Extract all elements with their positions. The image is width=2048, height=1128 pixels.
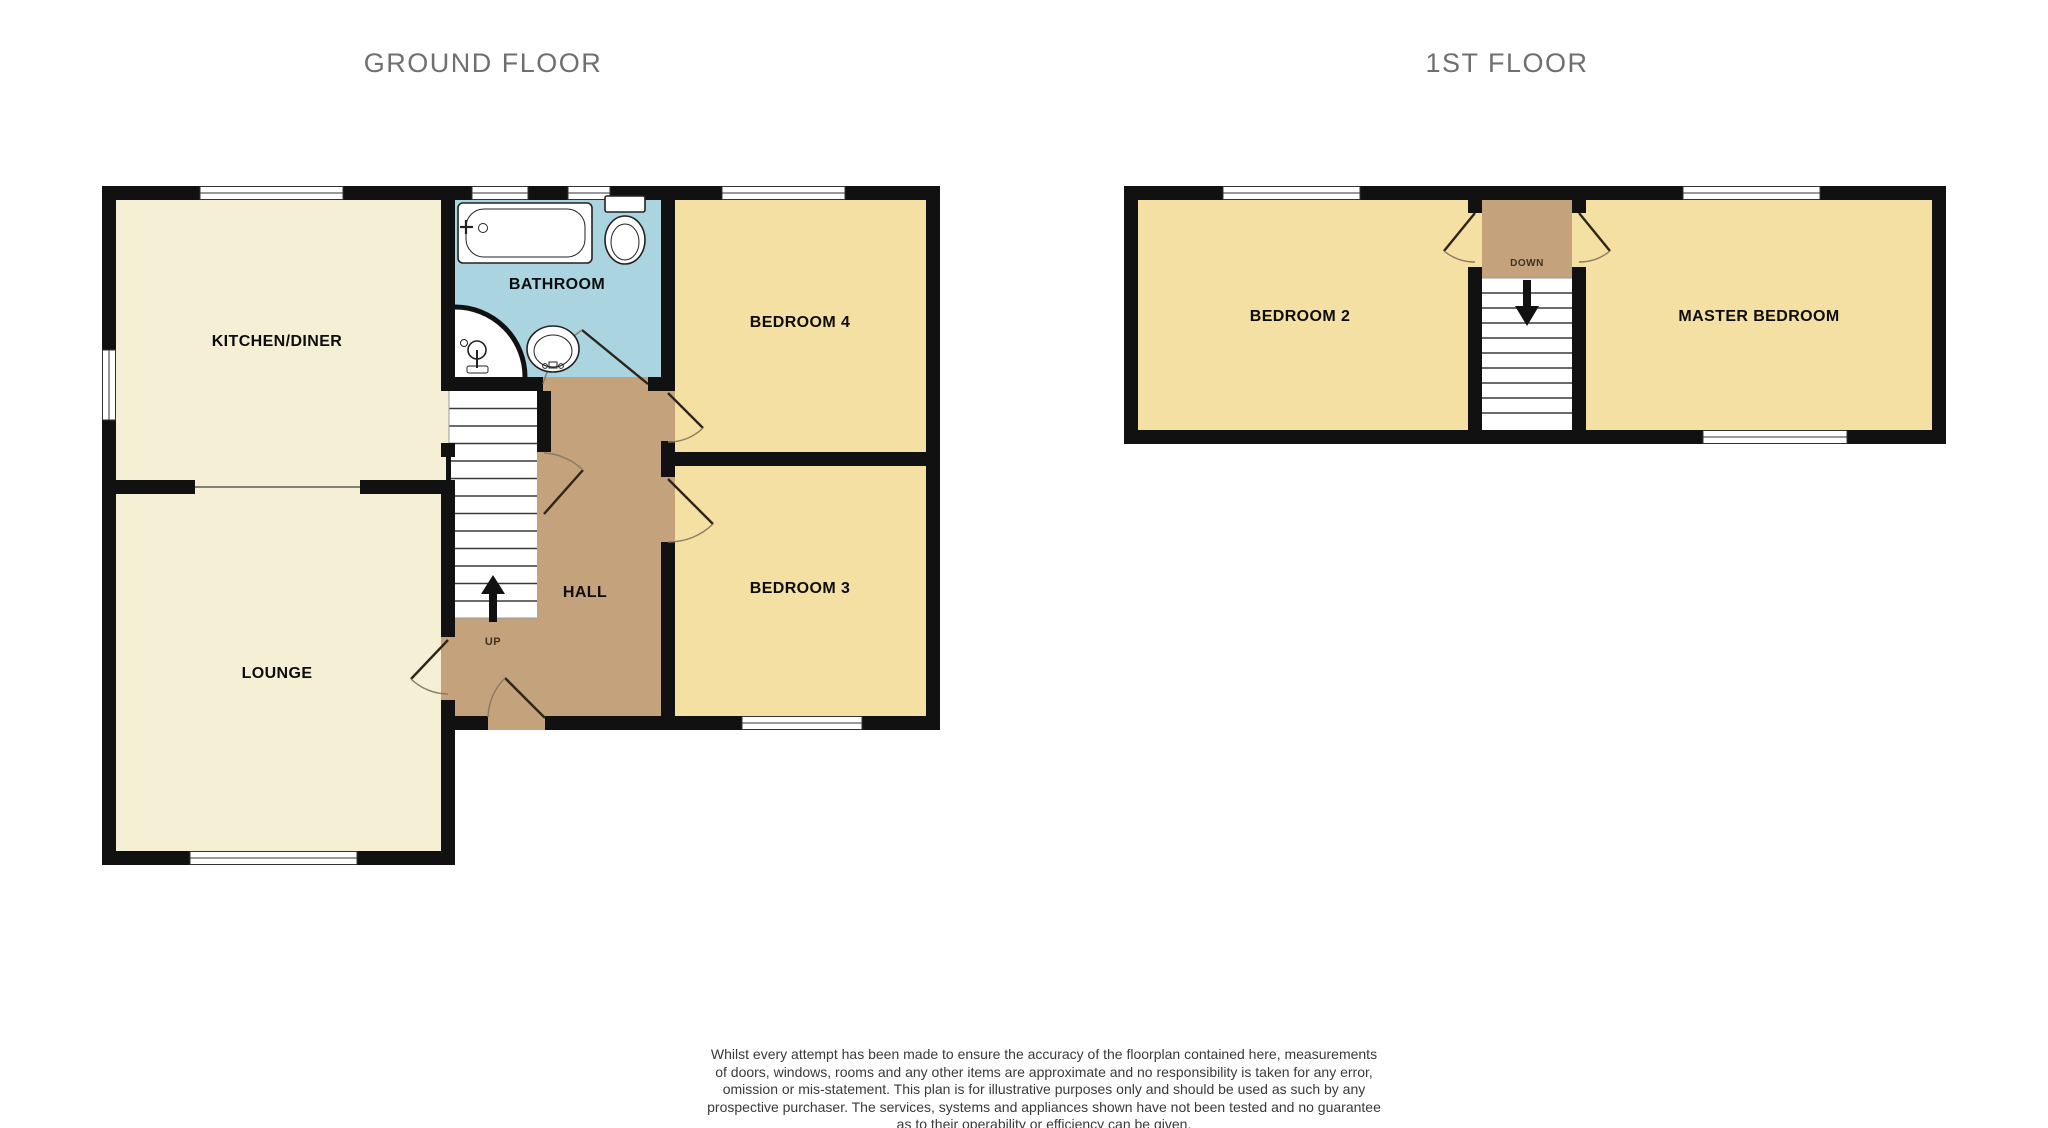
label-lounge: LOUNGE — [242, 665, 313, 682]
sink-icon — [527, 326, 579, 372]
bathtub-icon — [458, 203, 592, 263]
room-hall-fill — [537, 377, 675, 730]
label-stairs-down: DOWN — [1510, 258, 1544, 269]
disclaimer-line: omission or mis-statement. This plan is … — [624, 1081, 1464, 1099]
label-bedroom4: BEDROOM 4 — [750, 314, 851, 331]
disclaimer-line: of doors, windows, rooms and any other i… — [624, 1064, 1464, 1082]
disclaimer-text: Whilst every attempt has been made to en… — [624, 1046, 1464, 1128]
window-master-top — [1683, 187, 1820, 200]
toilet-icon — [605, 196, 645, 264]
disclaimer-line: prospective purchaser. The services, sys… — [624, 1099, 1464, 1117]
first-floor-plan: BEDROOM 2 MASTER BEDROOM DOWN — [1124, 186, 1946, 444]
label-stairs-up: UP — [485, 636, 501, 648]
label-bedroom2: BEDROOM 2 — [1250, 308, 1351, 325]
label-bathroom: BATHROOM — [509, 276, 605, 293]
window-bedroom3-bottom — [742, 717, 862, 730]
window-kitchen-top — [200, 187, 343, 200]
ground-floor-plan: KITCHEN/DINER BATHROOM BEDROOM 4 BEDROOM… — [102, 186, 940, 865]
label-master-bedroom: MASTER BEDROOM — [1678, 308, 1839, 325]
first-floor-title: 1ST FLOOR — [1425, 48, 1588, 78]
ground-floor-title: GROUND FLOOR — [364, 48, 603, 78]
window-master-bottom — [1703, 431, 1847, 444]
label-kitchen-diner: KITCHEN/DINER — [212, 333, 343, 350]
disclaimer-line: as to their operability or efficiency ca… — [624, 1116, 1464, 1128]
window-kitchen-left — [103, 350, 116, 420]
disclaimer-line: Whilst every attempt has been made to en… — [624, 1046, 1464, 1064]
window-lounge-bottom — [190, 852, 357, 865]
label-bedroom3: BEDROOM 3 — [750, 580, 851, 597]
window-bathroom-top-2 — [568, 187, 610, 200]
window-bedroom4-top — [722, 187, 845, 200]
room-hall-fill-lower — [441, 618, 551, 730]
floorplan-page: KITCHEN/DINER BATHROOM BEDROOM 4 BEDROOM… — [0, 0, 2048, 1128]
window-bathroom-top-1 — [472, 187, 528, 200]
floorplan-canvas: KITCHEN/DINER BATHROOM BEDROOM 4 BEDROOM… — [0, 0, 2048, 1128]
label-hall: HALL — [563, 584, 607, 601]
window-bedroom2-top — [1223, 187, 1360, 200]
